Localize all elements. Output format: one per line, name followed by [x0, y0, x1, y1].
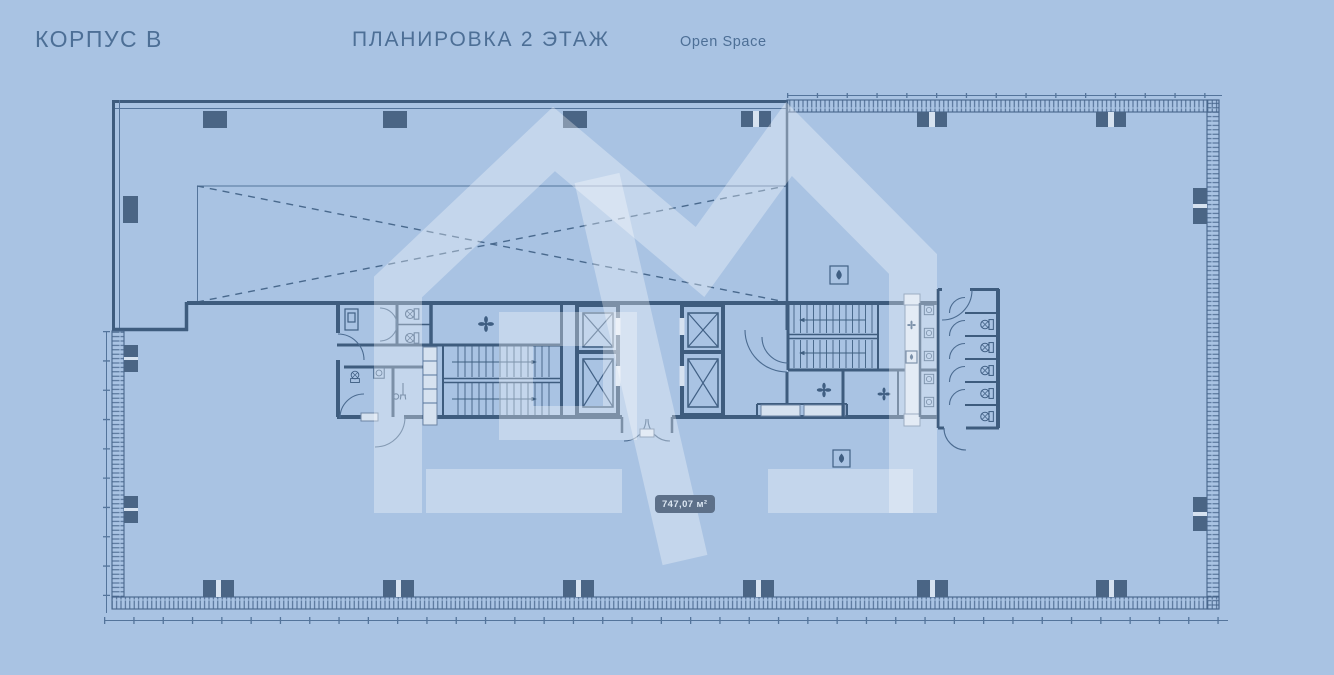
column	[581, 580, 594, 597]
door-swing-arc	[950, 298, 966, 314]
stair-treads	[794, 305, 872, 333]
elevator-bank-2	[680, 305, 724, 415]
door-swing-arc	[338, 334, 364, 360]
column	[1096, 580, 1109, 597]
column	[203, 580, 216, 597]
floor-plan-page: КОРПУС B ПЛАНИРОВКА 2 ЭТАЖ Open Space	[0, 0, 1334, 675]
door-swing-arc	[762, 337, 788, 363]
fan-icon	[817, 383, 831, 397]
toilet-icon	[981, 343, 994, 353]
water-drop-icon	[839, 454, 844, 464]
toilet-icon	[981, 389, 994, 399]
floor-plan-drawing	[0, 0, 1334, 675]
column	[401, 580, 414, 597]
door-swing-arc	[340, 394, 364, 418]
column	[935, 580, 948, 597]
toilet-icon	[981, 320, 994, 330]
door-swing-arc	[944, 428, 966, 450]
toilet-icon	[981, 412, 994, 422]
toilet-icon	[351, 371, 360, 382]
door-swing-arc	[950, 367, 966, 383]
door-swing-arc	[950, 344, 966, 360]
generated-detail	[203, 580, 1127, 597]
column	[1114, 580, 1127, 597]
toilet-icon	[981, 366, 994, 376]
column	[743, 580, 756, 597]
water-drop-icon	[836, 270, 841, 280]
door-swing-arc	[950, 390, 966, 406]
column	[383, 580, 396, 597]
column	[563, 580, 576, 597]
stair-treads	[794, 340, 872, 368]
door-swing-arc	[942, 290, 972, 320]
fan-icon	[478, 316, 494, 332]
area-badge: 747,07 м²	[655, 495, 715, 513]
core-corridor-right	[745, 304, 847, 417]
column	[221, 580, 234, 597]
fan-icon	[878, 388, 891, 401]
column	[761, 580, 774, 597]
door-swing-arc	[950, 321, 966, 337]
column	[917, 580, 930, 597]
